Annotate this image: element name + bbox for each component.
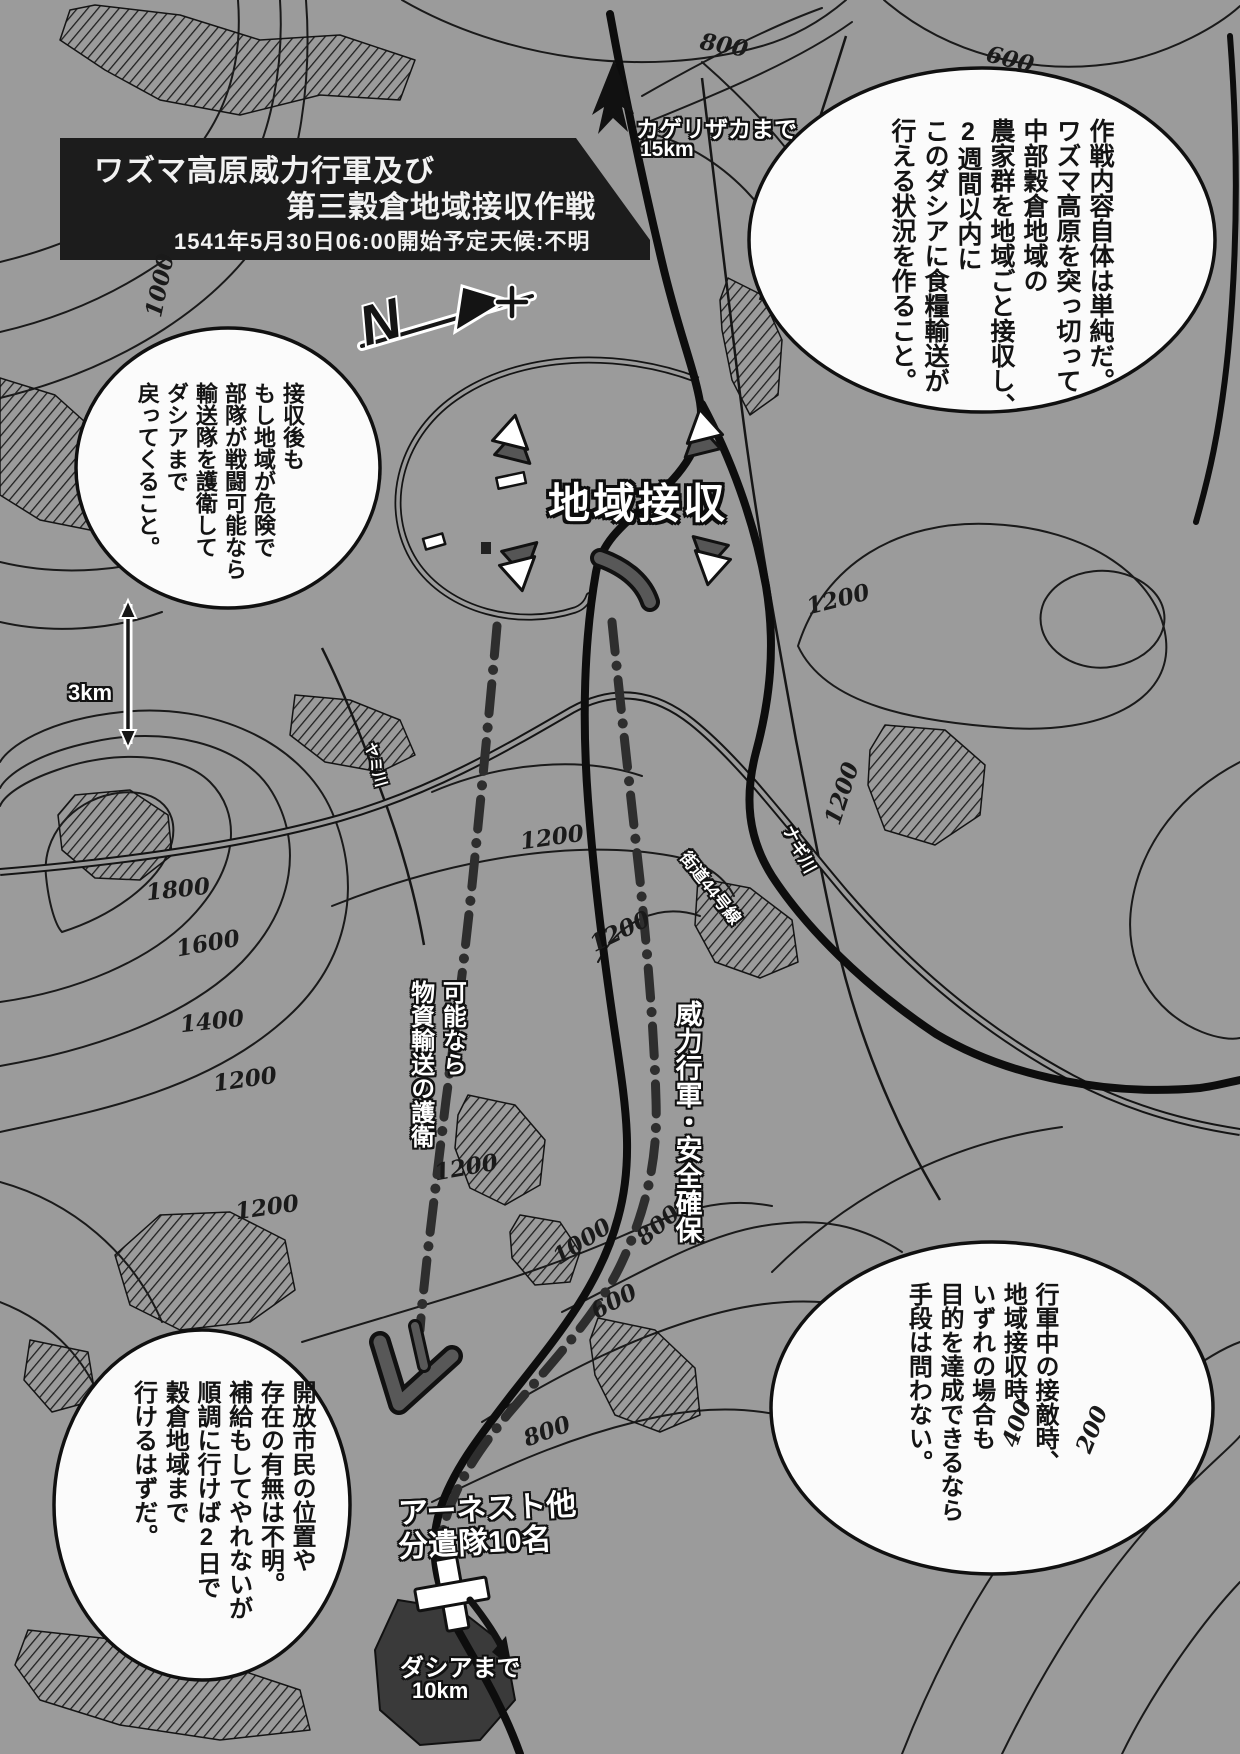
bubble-text-line: 目的を達成できるなら: [933, 1282, 965, 1568]
route-start-marker: [600, 558, 650, 602]
bubble-text-line: いずれの場合も: [965, 1282, 997, 1568]
bubble-text-line: ダシアまで: [162, 382, 191, 614]
route-escort-transport: [420, 626, 497, 1330]
bubble-text-line: このダシアに食糧輸送が: [918, 118, 951, 430]
bubble-text-line: 開放市民の位置や: [285, 1380, 317, 1666]
bubble-text-line: 作戦内容自体は単純だ。: [1083, 118, 1116, 430]
bubble-engagement-text: 行軍中の接敵時、 地域接収時、 いずれの場合も 目的を達成できるなら 手段は問わ…: [884, 1282, 1060, 1568]
label-detachment: 分遣隊10名: [397, 1514, 552, 1566]
bubble-text-line: 接収後も: [278, 382, 307, 614]
manga-operation-map: N ワズマ高原威力行軍及: [0, 0, 1240, 1754]
bubble-text-line: 穀倉地域まで: [159, 1380, 191, 1666]
bubble-text-line: 農家群を地域ごと接収し、: [984, 118, 1017, 430]
bubble-text-line: 2週間以内に: [951, 118, 984, 430]
label-escort-line: 物資輸送の護衛: [404, 980, 436, 1195]
bubble-text-line: 行けるはずだ。: [127, 1380, 159, 1666]
route-end-chevron-icon: [380, 1326, 452, 1404]
bubble-text-line: 行える状況を作ること。: [885, 118, 918, 430]
label-scale: 3km: [68, 680, 112, 706]
bubble-text-line: 中部穀倉地域の: [1017, 118, 1050, 430]
label-march-security: 威力行軍・安全確保: [668, 1000, 704, 1300]
bubble-text-line: 存在の有無は不明。: [254, 1380, 286, 1666]
compass-north-icon: N: [352, 285, 532, 357]
bubble-text-line: 補給もしてやれないが: [222, 1380, 254, 1666]
bubble-text-line: 手段は問わない。: [902, 1282, 934, 1568]
title-schedule: 1541年5月30日06:00開始予定: [174, 224, 489, 256]
bubble-post-seizure-text: 接収後も もし地域が危険で 部隊が戦闘可能なら 輸送隊を護衛して ダシアまで 戻…: [102, 382, 307, 614]
bubble-text-line: もし地域が危険で: [249, 382, 278, 614]
bubble-text-line: 部隊が戦闘可能なら: [220, 382, 249, 614]
bubble-text-line: 戻ってくること。: [133, 382, 162, 614]
bubble-text-line: ワズマ高原を突っ切って: [1050, 118, 1083, 430]
bubble-text-line: 行軍中の接敵時、: [1028, 1282, 1060, 1568]
bubble-operation-text: 作戦内容自体は単純だ。 ワズマ高原を突っ切って 中部穀倉地域の 農家群を地域ごと…: [868, 118, 1116, 430]
label-kagerizaka-distance: 15km: [640, 138, 694, 162]
label-dashia-distance: 10km: [412, 1678, 468, 1704]
label-area-seizure: 地域接収: [548, 470, 728, 531]
bubble-citizens-text: 開放市民の位置や 存在の有無は不明。 補給もしてやれないが 順調に行けば2日で …: [112, 1380, 317, 1666]
title-weather: 天候:不明: [490, 224, 590, 256]
bubble-text-line: 順調に行けば2日で: [190, 1380, 222, 1666]
bubble-text-line: 輸送隊を護衛して: [191, 382, 220, 614]
title-line2: 第三穀倉地域接収作戦: [286, 182, 596, 226]
